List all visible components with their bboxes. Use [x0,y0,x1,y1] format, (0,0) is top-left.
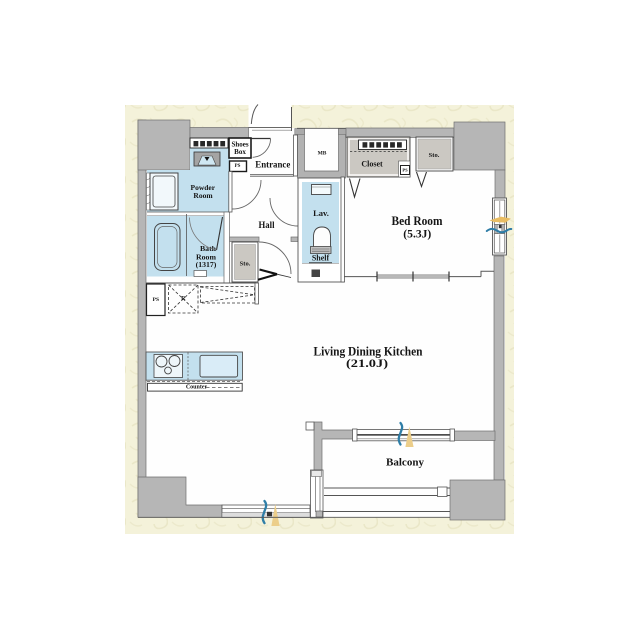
svg-text:PS: PS [235,164,241,169]
svg-text:Sto.: Sto. [429,152,440,159]
svg-text:Sto.: Sto. [240,261,251,268]
svg-text:MB: MB [318,150,327,156]
svg-text:Hall: Hall [259,221,275,231]
svg-text:(21.0J): (21.0J) [346,356,388,370]
svg-text:PS: PS [153,297,159,303]
svg-text:(5.3J): (5.3J) [403,227,431,241]
svg-text:Lav.: Lav. [313,208,329,218]
svg-text:R: R [181,296,186,302]
svg-text:(1317): (1317) [196,260,217,269]
svg-text:Room: Room [193,191,213,200]
svg-text:Box: Box [234,148,246,156]
svg-text:Closet: Closet [361,160,383,169]
svg-text:Entrance: Entrance [255,160,290,170]
svg-text:Balcony: Balcony [386,456,424,468]
svg-text:Counter: Counter [186,384,208,390]
svg-text:Shelf: Shelf [312,254,330,263]
svg-text:PS: PS [402,168,408,173]
